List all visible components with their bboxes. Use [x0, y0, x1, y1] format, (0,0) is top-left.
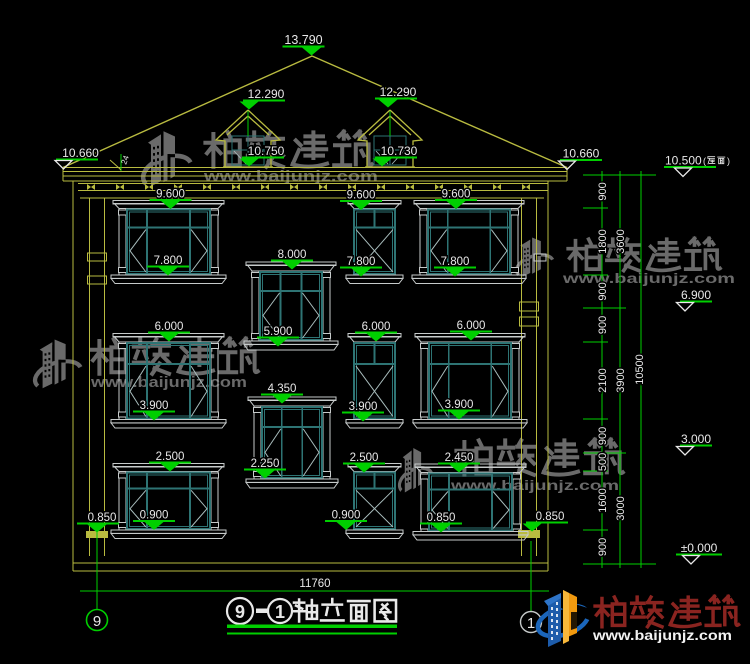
svg-text:3.900: 3.900 — [140, 400, 169, 412]
svg-text:9: 9 — [235, 602, 245, 622]
svg-text:900: 900 — [597, 282, 609, 300]
svg-text:10.750: 10.750 — [248, 144, 285, 158]
svg-text:3.900: 3.900 — [445, 399, 474, 411]
svg-text:0.850: 0.850 — [536, 511, 565, 523]
svg-text:3.900: 3.900 — [349, 401, 378, 413]
svg-text:www.baijunjz.com: www.baijunjz.com — [90, 375, 247, 391]
svg-text:12.290: 12.290 — [248, 87, 285, 101]
svg-text:2.450: 2.450 — [445, 452, 474, 464]
svg-text:www.baijunjz.com: www.baijunjz.com — [450, 477, 619, 493]
svg-text:0.850: 0.850 — [88, 512, 117, 524]
svg-text:2.500: 2.500 — [350, 452, 379, 464]
svg-text:www.baijunjz.com: www.baijunjz.com — [592, 627, 732, 643]
svg-text:4.350: 4.350 — [268, 383, 297, 395]
svg-text:9.600: 9.600 — [156, 189, 185, 201]
svg-text:www.baijunjz.com: www.baijunjz.com — [562, 271, 735, 286]
svg-text:1800: 1800 — [597, 229, 609, 253]
svg-text:0.900: 0.900 — [332, 510, 361, 522]
svg-text:7.800: 7.800 — [154, 255, 183, 267]
svg-text:12.290: 12.290 — [380, 85, 417, 99]
svg-text:6.000: 6.000 — [155, 321, 184, 333]
svg-text:): ) — [727, 156, 730, 166]
svg-text:900: 900 — [597, 182, 609, 200]
svg-text:2100: 2100 — [597, 368, 609, 392]
svg-text:(: ( — [703, 156, 706, 166]
svg-text:9.600: 9.600 — [442, 189, 471, 201]
svg-text:5.900: 5.900 — [264, 326, 293, 338]
svg-text:3600: 3600 — [615, 229, 627, 253]
svg-text:1600: 1600 — [597, 488, 609, 512]
svg-text:9: 9 — [93, 613, 101, 630]
svg-text:900: 900 — [597, 316, 609, 334]
svg-text:1: 1 — [275, 602, 285, 622]
svg-text:9.600: 9.600 — [347, 190, 376, 202]
svg-text:1: 1 — [527, 615, 535, 632]
svg-text:3.000: 3.000 — [681, 432, 711, 446]
svg-text:900: 900 — [597, 427, 609, 445]
svg-text:3900: 3900 — [615, 368, 627, 392]
svg-text:8.000: 8.000 — [278, 249, 307, 261]
svg-text:6.000: 6.000 — [457, 320, 486, 332]
svg-text:10.500: 10.500 — [665, 154, 702, 168]
svg-text:3000: 3000 — [615, 496, 627, 520]
svg-text:7.800: 7.800 — [441, 256, 470, 268]
svg-text:11760: 11760 — [299, 578, 330, 590]
svg-text:10.660: 10.660 — [563, 147, 600, 161]
svg-text:10500: 10500 — [634, 354, 646, 385]
svg-text:0.850: 0.850 — [427, 512, 456, 524]
svg-text:10.660: 10.660 — [62, 146, 99, 160]
svg-text:900: 900 — [597, 538, 609, 556]
svg-text:2.250: 2.250 — [251, 458, 280, 470]
svg-text:±0.000: ±0.000 — [681, 541, 718, 555]
svg-text:6.900: 6.900 — [681, 288, 711, 302]
svg-text:10.730: 10.730 — [381, 144, 418, 158]
svg-text:2.500: 2.500 — [156, 451, 185, 463]
svg-text:6.000: 6.000 — [362, 321, 391, 333]
svg-text:7.800: 7.800 — [347, 256, 376, 268]
svg-text:13.790: 13.790 — [284, 33, 322, 47]
svg-text:0.900: 0.900 — [140, 510, 169, 522]
svg-text:500: 500 — [597, 453, 609, 471]
